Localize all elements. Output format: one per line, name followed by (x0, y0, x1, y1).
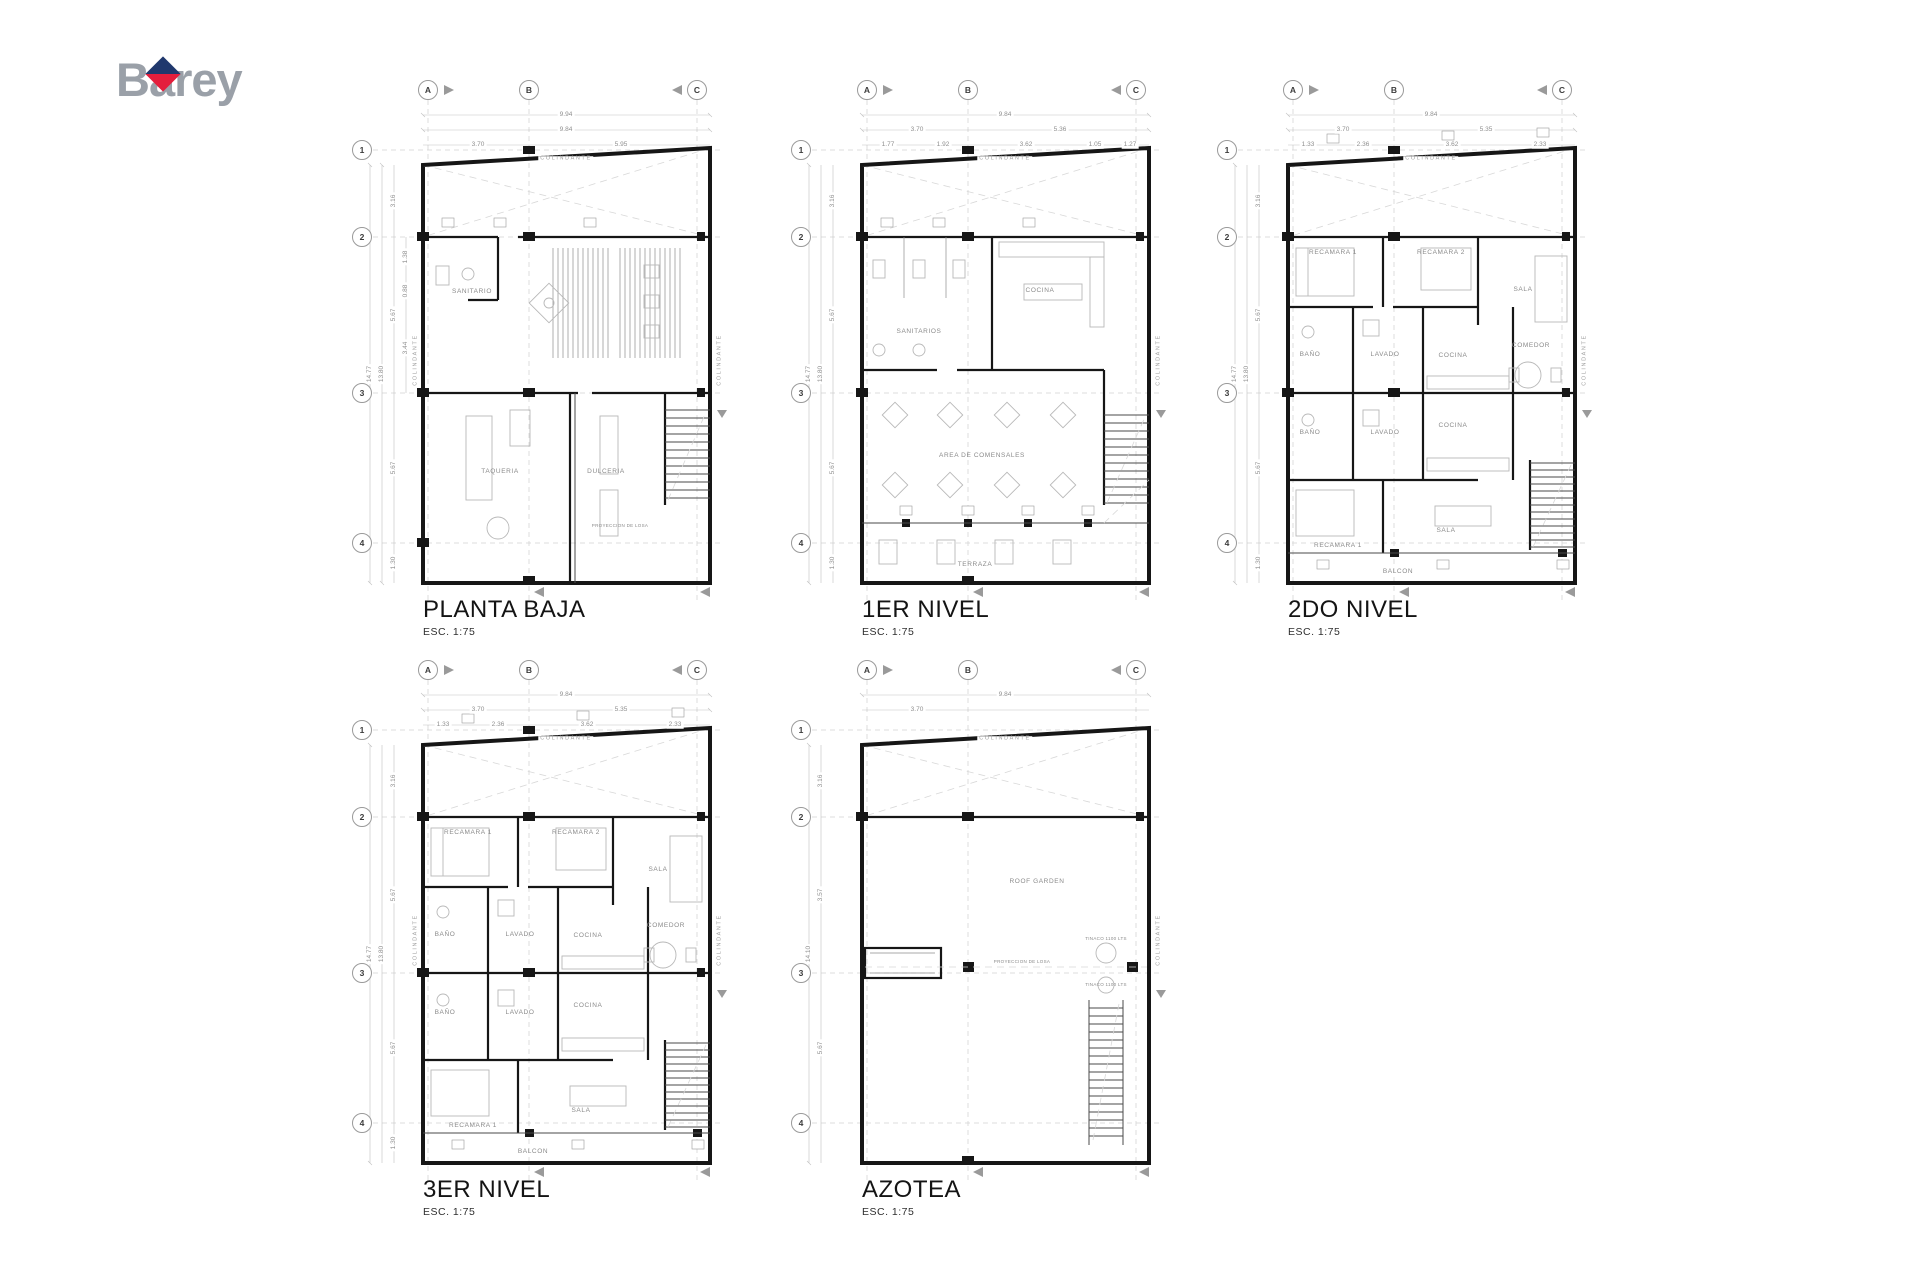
room-label-recamara1: RECAMARA 1 (444, 830, 492, 837)
floor-plan-3er-nivel: A B C 1 2 3 4 9.84 3.70 5.35 1.33 2.36 3… (348, 640, 748, 1240)
colindante-label: COLINDANTE (977, 736, 1032, 742)
grid-bubble-a: A (857, 80, 877, 100)
grid-bubble-2: 2 (352, 227, 372, 247)
plan-title: PLANTA BAJA (423, 598, 585, 622)
grid-bubble-1: 1 (791, 140, 811, 160)
grid-bubble-2: 2 (791, 227, 811, 247)
dimension: 5.67 (830, 307, 837, 324)
dimension: 3.70 (909, 127, 926, 134)
colindante-label: COLINDANTE (1582, 332, 1588, 387)
room-label-recamara2: RECAMARA 2 (552, 830, 600, 837)
dimension: 1.30 (1256, 555, 1263, 572)
dimension: 13.80 (818, 364, 825, 384)
room-label-cocina2: COCINA (1439, 423, 1468, 430)
plan-scale: ESC. 1:75 (862, 627, 914, 638)
dimension: 9.84 (558, 692, 575, 699)
dimension: 5.67 (391, 460, 398, 477)
dimension: 5.95 (613, 142, 630, 149)
room-label-balcon: BALCON (1383, 569, 1413, 576)
grid-bubble-a: A (418, 660, 438, 680)
dimension: 3.70 (470, 707, 487, 714)
dimension: 1.33 (1300, 142, 1317, 149)
dimension: 3.16 (1256, 193, 1263, 210)
room-label-lavado: LAVADO (505, 932, 534, 939)
dimension: 3.16 (391, 773, 398, 790)
dimension: 3.62 (1018, 142, 1035, 149)
note-proyeccion: PROYECCION DE LOSA (592, 524, 648, 529)
dimension: 5.67 (1256, 307, 1263, 324)
grid-bubble-4: 4 (352, 533, 372, 553)
room-label-lavado2: LAVADO (505, 1010, 534, 1017)
dimension: 14.10 (806, 944, 813, 964)
colindante-label: COLINDANTE (413, 332, 419, 387)
grid-bubble-b: B (1384, 80, 1404, 100)
dimension: 14.77 (367, 944, 374, 964)
dimension: 1.27 (1122, 142, 1139, 149)
dimension: 2.33 (667, 722, 684, 729)
grid-bubble-1: 1 (1217, 140, 1237, 160)
room-label-comedor: COMEDOR (1512, 343, 1550, 350)
logo-letter: B (116, 53, 149, 106)
dimension: 5.67 (830, 460, 837, 477)
grid-bubble-b: B (958, 660, 978, 680)
tinaco-label: TINACO 1100 LTS (1085, 983, 1127, 988)
room-label-sanitarios: SANITARIOS (897, 329, 942, 336)
dimension: 5.67 (818, 1040, 825, 1057)
dimension: 1.38 (403, 249, 410, 266)
plan-scale: ESC. 1:75 (862, 1207, 914, 1218)
dimension: 9.84 (997, 112, 1014, 119)
room-label-sanitario: SANITARIO (452, 289, 492, 296)
dimension: 1.77 (880, 142, 897, 149)
dimension: 2.36 (490, 722, 507, 729)
room-label-lavado: LAVADO (1370, 352, 1399, 359)
room-label-sala: SALA (648, 867, 667, 874)
room-label-cocina2: COCINA (574, 1003, 603, 1010)
room-label-taqueria: TAQUERIA (481, 469, 519, 476)
grid-bubble-1: 1 (352, 720, 372, 740)
dimension: 1.92 (935, 142, 952, 149)
colindante-label: COLINDANTE (538, 156, 593, 162)
room-label-roof-garden: ROOF GARDEN (1010, 879, 1065, 886)
note-proyeccion: PROYECCION DE LOSA (994, 960, 1050, 965)
room-label-dulceria: DULCERIA (587, 469, 625, 476)
room-label-recamara1b: RECAMARA 1 (1314, 543, 1362, 550)
grid-bubble-b: B (519, 660, 539, 680)
room-label-sala: SALA (1513, 287, 1532, 294)
grid-bubble-4: 4 (791, 533, 811, 553)
colindante-label: COLINDANTE (1403, 156, 1458, 162)
colindante-label: COLINDANTE (1156, 332, 1162, 387)
dimension: 1.30 (830, 555, 837, 572)
grid-bubble-b: B (519, 80, 539, 100)
colindante-label: COLINDANTE (977, 156, 1032, 162)
dimension: 5.36 (1052, 127, 1069, 134)
grid-bubble-3: 3 (791, 383, 811, 403)
dimension: 3.62 (579, 722, 596, 729)
floor-plan-azotea: A B C 1 2 3 4 9.84 3.70 14.10 3.16 3.57 … (787, 640, 1187, 1240)
room-label-bano: BAÑO (1300, 352, 1321, 359)
grid-bubble-c: C (1126, 80, 1146, 100)
plan-title: 2DO NIVEL (1288, 598, 1418, 622)
grid-bubble-1: 1 (791, 720, 811, 740)
floor-plan-2do-nivel: A B C 1 2 3 4 9.84 3.70 5.35 1.33 2.36 3… (1213, 60, 1613, 660)
room-label-sala2: SALA (571, 1108, 590, 1115)
dimension: 14.77 (806, 364, 813, 384)
dimension: 9.84 (1423, 112, 1440, 119)
dimension: 13.80 (379, 364, 386, 384)
grid-bubble-a: A (1283, 80, 1303, 100)
room-label-cocina: COCINA (1439, 353, 1468, 360)
colindante-label: COLINDANTE (538, 736, 593, 742)
barey-logo: Barey (116, 56, 242, 103)
room-label-comedor: COMEDOR (647, 923, 685, 930)
dimension: 3.62 (1444, 142, 1461, 149)
room-label-cocina: COCINA (574, 933, 603, 940)
room-label-comensales: AREA DE COMENSALES (939, 453, 1025, 460)
drawing-sheet: Barey A B C 1 2 3 4 9.94 9.84 3.70 5.95 … (0, 0, 1920, 1280)
room-label-recamara1b: RECAMARA 1 (449, 1123, 497, 1130)
dimension: 1.30 (391, 1135, 398, 1152)
tinaco-label: TINACO 1100 LTS (1085, 937, 1127, 942)
dimension: 0.88 (403, 283, 410, 300)
grid-bubble-b: B (958, 80, 978, 100)
plan-title: AZOTEA (862, 1178, 961, 1202)
grid-bubble-a: A (857, 660, 877, 680)
room-label-sala2: SALA (1436, 528, 1455, 535)
dimension: 5.67 (1256, 460, 1263, 477)
dimension: 9.94 (558, 112, 575, 119)
grid-bubble-c: C (687, 660, 707, 680)
logo-letters: rey (174, 53, 242, 106)
colindante-label: COLINDANTE (413, 912, 419, 967)
grid-bubble-c: C (1552, 80, 1572, 100)
room-label-cocina: COCINA (1026, 288, 1055, 295)
plan-title: 1ER NIVEL (862, 598, 989, 622)
dimension: 3.16 (818, 773, 825, 790)
dimension: 5.35 (1478, 127, 1495, 134)
floor-plan-1er-nivel: A B C 1 2 3 4 9.84 3.70 5.36 1.77 1.92 3… (787, 60, 1187, 660)
room-label-recamara1: RECAMARA 1 (1309, 250, 1357, 257)
room-label-bano2: BAÑO (435, 1010, 456, 1017)
grid-bubble-2: 2 (352, 807, 372, 827)
grid-bubble-3: 3 (1217, 383, 1237, 403)
dimension: 5.35 (613, 707, 630, 714)
colindante-label: COLINDANTE (1156, 912, 1162, 967)
dimension: 13.80 (1244, 364, 1251, 384)
dimension: 14.77 (367, 364, 374, 384)
floor-plan-planta-baja: A B C 1 2 3 4 9.94 9.84 3.70 5.95 14.77 … (348, 60, 748, 660)
dimension: 9.84 (997, 692, 1014, 699)
dimension: 3.70 (909, 707, 926, 714)
dimension: 3.44 (403, 340, 410, 357)
dimension: 13.80 (379, 944, 386, 964)
dimension: 1.05 (1087, 142, 1104, 149)
colindante-label: COLINDANTE (717, 912, 723, 967)
grid-bubble-c: C (1126, 660, 1146, 680)
dimension: 5.67 (391, 307, 398, 324)
grid-bubble-3: 3 (352, 963, 372, 983)
dimension: 1.30 (391, 555, 398, 572)
dimension: 14.77 (1232, 364, 1239, 384)
dimension: 3.70 (1335, 127, 1352, 134)
grid-bubble-4: 4 (1217, 533, 1237, 553)
grid-bubble-2: 2 (791, 807, 811, 827)
plan-title: 3ER NIVEL (423, 1178, 550, 1202)
dimension: 3.57 (818, 887, 825, 904)
room-label-terraza: TERRAZA (958, 562, 993, 569)
dimension: 3.16 (830, 193, 837, 210)
dimension: 1.33 (435, 722, 452, 729)
dimension: 3.16 (391, 193, 398, 210)
grid-bubble-c: C (687, 80, 707, 100)
dimension: 2.33 (1532, 142, 1549, 149)
dimension: 3.70 (470, 142, 487, 149)
dimension: 2.36 (1355, 142, 1372, 149)
room-label-lavado2: LAVADO (1370, 430, 1399, 437)
plan-scale: ESC. 1:75 (423, 1207, 475, 1218)
plan-scale: ESC. 1:75 (423, 627, 475, 638)
dimension: 5.67 (391, 1040, 398, 1057)
dimension: 5.67 (391, 887, 398, 904)
plan-scale: ESC. 1:75 (1288, 627, 1340, 638)
grid-bubble-a: A (418, 80, 438, 100)
colindante-label: COLINDANTE (717, 332, 723, 387)
grid-bubble-2: 2 (1217, 227, 1237, 247)
grid-bubble-3: 3 (791, 963, 811, 983)
room-label-recamara2: RECAMARA 2 (1417, 250, 1465, 257)
plan-drawing (787, 640, 1187, 1240)
grid-bubble-4: 4 (791, 1113, 811, 1133)
plan-drawing (348, 60, 748, 660)
dimension: 9.84 (558, 127, 575, 134)
grid-bubble-4: 4 (352, 1113, 372, 1133)
room-label-bano: BAÑO (435, 932, 456, 939)
room-label-balcon: BALCON (518, 1149, 548, 1156)
grid-bubble-1: 1 (352, 140, 372, 160)
grid-bubble-3: 3 (352, 383, 372, 403)
room-label-bano2: BAÑO (1300, 430, 1321, 437)
plan-drawing (787, 60, 1187, 660)
